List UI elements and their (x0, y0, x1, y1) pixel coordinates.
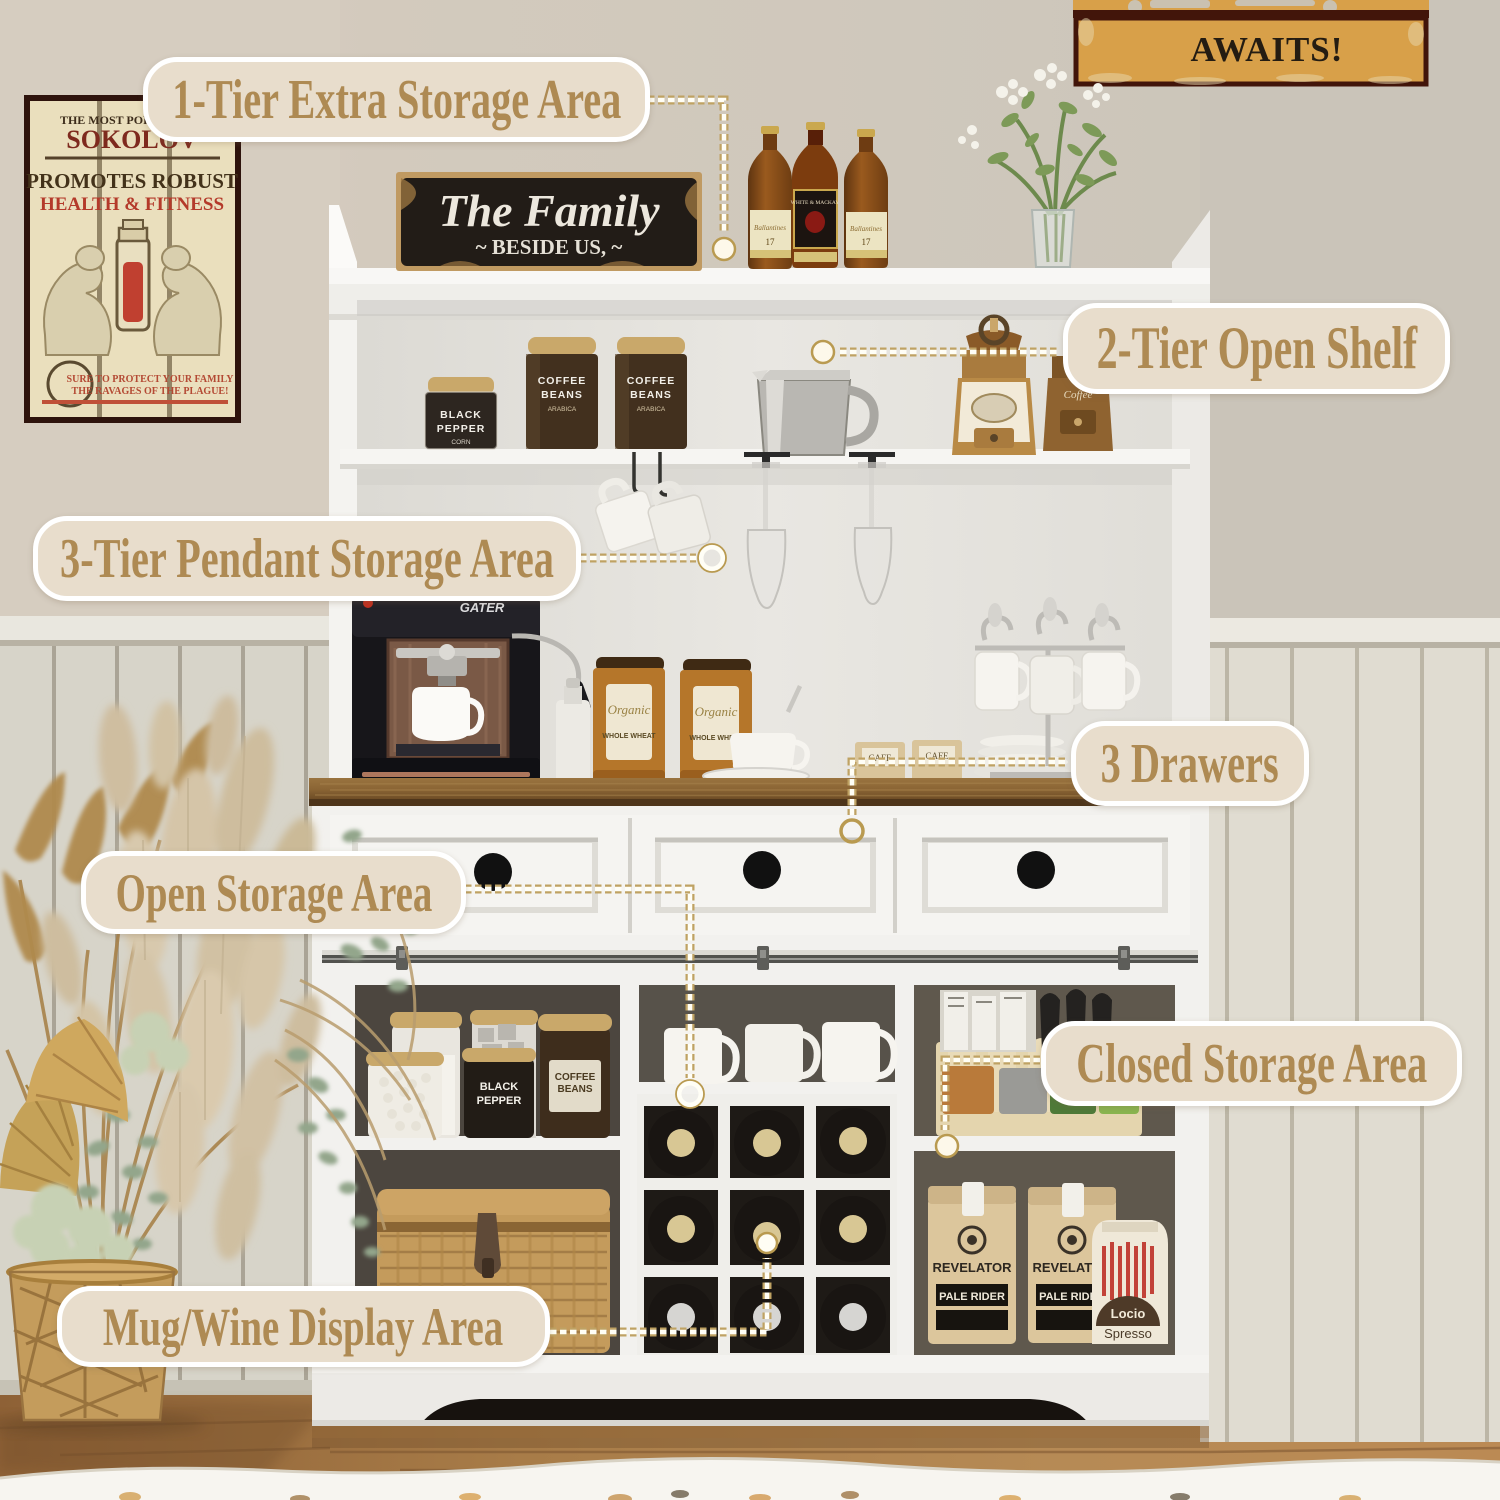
svg-text:Organic: Organic (608, 702, 651, 717)
svg-text:Organic: Organic (695, 704, 738, 719)
svg-text:WHOLE WHEAT: WHOLE WHEAT (602, 733, 656, 740)
svg-text:Locio: Locio (1111, 1306, 1146, 1321)
svg-text:~ BESIDE US, ~: ~ BESIDE US, ~ (476, 235, 623, 259)
svg-text:COFFEE: COFFEE (538, 375, 587, 387)
svg-text:THE RAVAGES OF THE PLAGUE!: THE RAVAGES OF THE PLAGUE! (72, 386, 229, 397)
svg-text:17: 17 (766, 237, 776, 247)
svg-text:BLACK: BLACK (440, 409, 482, 421)
svg-text:AWAITS!: AWAITS! (1191, 30, 1344, 69)
svg-text:PEPPER: PEPPER (477, 1095, 522, 1107)
svg-text:Ballantines: Ballantines (754, 224, 786, 232)
svg-text:PALE RIDER: PALE RIDER (939, 1291, 1005, 1303)
svg-text:ARABICA: ARABICA (637, 406, 666, 413)
svg-text:BLACK: BLACK (480, 1081, 519, 1093)
svg-text:CORN: CORN (451, 439, 470, 446)
svg-text:BEANS: BEANS (541, 389, 583, 401)
svg-text:Spresso: Spresso (1104, 1326, 1152, 1341)
svg-text:SURE TO PROTECT YOUR FAMILY: SURE TO PROTECT YOUR FAMILY (67, 374, 235, 385)
svg-text:PEPPER: PEPPER (437, 423, 486, 435)
svg-text:BEANS: BEANS (557, 1084, 592, 1095)
svg-text:The Family: The Family (438, 185, 660, 236)
svg-text:COFFEE: COFFEE (627, 375, 676, 387)
svg-text:WHITE & MACKAY: WHITE & MACKAY (791, 200, 840, 206)
svg-text:17: 17 (862, 237, 872, 247)
svg-text:REVELATOR: REVELATOR (933, 1260, 1013, 1275)
svg-text:Ballantines: Ballantines (850, 225, 882, 233)
svg-text:HEALTH & FITNESS: HEALTH & FITNESS (40, 194, 224, 215)
svg-text:PROMOTES ROBUST: PROMOTES ROBUST (26, 169, 238, 193)
svg-text:BEANS: BEANS (630, 389, 672, 401)
svg-text:COFFEE: COFFEE (555, 1072, 596, 1083)
svg-text:ARABICA: ARABICA (548, 406, 577, 413)
svg-text:GATER: GATER (460, 600, 505, 615)
